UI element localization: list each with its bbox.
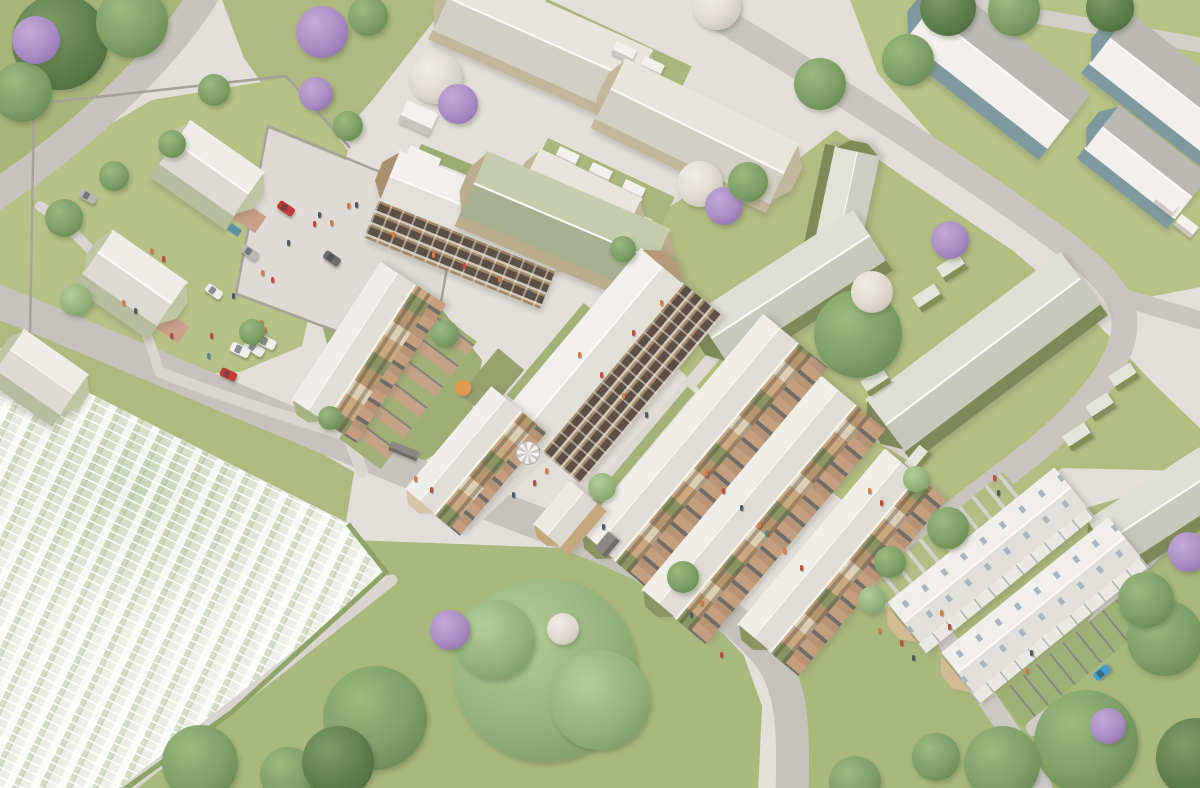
person-23 (528, 290, 531, 296)
tree-31 (588, 473, 616, 501)
person-13 (170, 333, 173, 339)
person-15 (162, 256, 165, 262)
tree-52 (1118, 572, 1174, 628)
person-39 (722, 488, 725, 494)
person-40 (740, 505, 743, 511)
tree-45 (858, 586, 886, 614)
tree-18 (728, 162, 768, 202)
person-32 (512, 492, 515, 498)
blossom-shrub-38 (547, 613, 579, 645)
person-53 (997, 490, 1000, 496)
blossom-shrub-27 (931, 221, 969, 259)
car-windshield (1096, 669, 1104, 677)
car-windshield (82, 191, 90, 199)
person-26 (622, 393, 625, 399)
person-21 (463, 263, 466, 269)
tree-47 (1034, 690, 1138, 788)
blossom-shrub-37 (430, 610, 470, 650)
person-55 (880, 500, 883, 506)
person-31 (533, 480, 536, 486)
person-50 (912, 655, 915, 661)
person-16 (122, 300, 125, 306)
person-51 (878, 628, 881, 634)
person-38 (705, 470, 708, 476)
blossom-shrub-7 (438, 84, 478, 124)
person-49 (900, 640, 903, 646)
person-4 (287, 240, 290, 246)
car-windshield (234, 345, 242, 354)
person-22 (498, 276, 501, 282)
person-30 (545, 468, 548, 474)
tree-20 (794, 58, 846, 110)
tree-15 (239, 319, 265, 345)
tree-42 (302, 726, 374, 788)
person-28 (660, 300, 663, 306)
tree-28 (431, 320, 459, 348)
aerial-rendering-scene (0, 0, 1200, 788)
person-54 (868, 488, 871, 494)
tree-9 (158, 130, 186, 158)
blossom-shrub-4 (296, 6, 348, 58)
car-windshield (280, 203, 288, 211)
tree-32 (667, 561, 699, 593)
person-56 (602, 524, 605, 530)
person-29 (632, 330, 635, 336)
car-windshield (208, 286, 216, 294)
person-41 (758, 522, 761, 528)
tree-8 (198, 74, 230, 106)
person-36 (700, 600, 703, 606)
person-17 (134, 308, 137, 314)
person-0 (330, 220, 333, 226)
person-47 (1030, 650, 1033, 656)
person-9 (210, 333, 213, 339)
person-7 (232, 293, 235, 299)
car-windshield (326, 253, 334, 261)
person-19 (392, 232, 395, 238)
blossom-shrub-3 (12, 16, 60, 64)
person-25 (600, 372, 603, 378)
person-6 (271, 277, 274, 283)
person-45 (940, 610, 943, 616)
person-20 (432, 252, 435, 258)
tree-14 (60, 284, 92, 316)
person-33 (414, 476, 417, 482)
person-35 (690, 612, 693, 618)
tree-44 (874, 546, 906, 578)
tree-43 (927, 507, 969, 549)
car-windshield (244, 247, 252, 255)
person-12 (207, 353, 210, 359)
person-52 (993, 475, 996, 481)
person-43 (783, 548, 786, 554)
spiral-staircase (516, 441, 540, 465)
person-24 (578, 352, 581, 358)
person-27 (645, 412, 648, 418)
tree-33 (903, 466, 929, 492)
person-5 (261, 270, 264, 276)
blossom-shrub-53 (1090, 708, 1126, 744)
person-1 (313, 221, 316, 227)
blossom-shrub-12 (299, 77, 333, 111)
person-18 (355, 202, 358, 208)
tree-10 (99, 161, 129, 191)
terrace-umbrella (455, 380, 471, 396)
person-2 (318, 212, 321, 218)
tree-11 (45, 199, 83, 237)
person-37 (720, 652, 723, 658)
person-48 (1025, 668, 1028, 674)
tree-30 (610, 236, 636, 262)
person-3 (347, 203, 350, 209)
blossom-shrub-26 (851, 271, 893, 313)
tree-21 (882, 34, 934, 86)
tree-49 (912, 733, 960, 781)
person-44 (800, 565, 803, 571)
tree-36 (550, 650, 650, 750)
person-14 (150, 248, 153, 254)
blossom-shrub-51 (1168, 532, 1200, 572)
car-windshield (223, 369, 230, 377)
person-34 (430, 487, 433, 493)
tree-13 (333, 111, 363, 141)
tree-29 (318, 406, 342, 430)
person-46 (948, 624, 951, 630)
person-42 (765, 530, 768, 536)
